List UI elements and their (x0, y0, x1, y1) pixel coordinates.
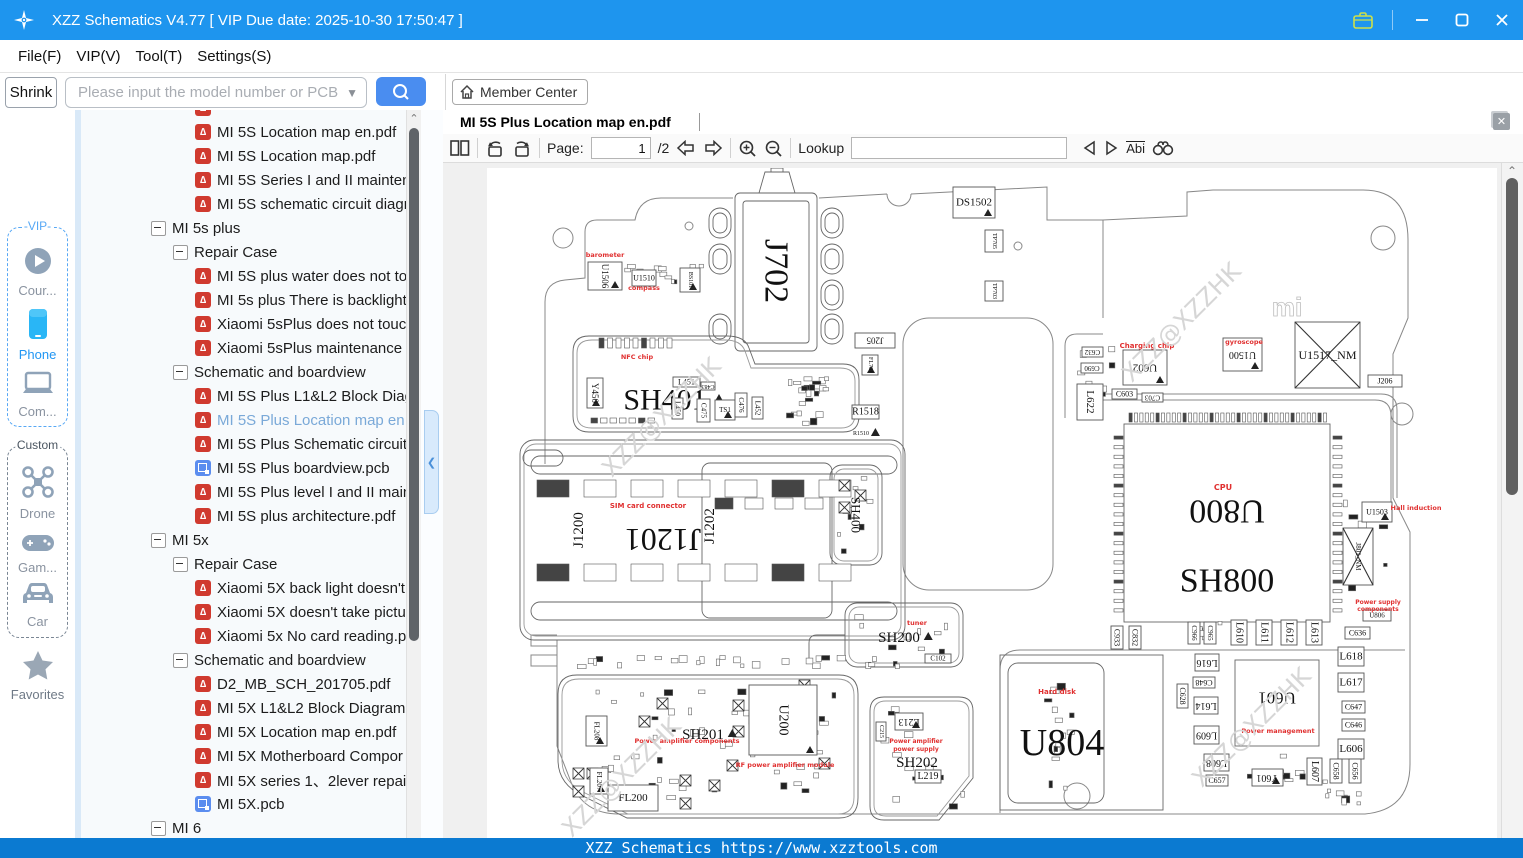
component-C603: C603 (1112, 389, 1137, 399)
red-annotation: compass (628, 284, 660, 292)
pdf-file-icon: ∆ (195, 172, 211, 188)
pdf-file-icon: ∆ (195, 412, 211, 428)
next-page-button[interactable] (703, 140, 723, 156)
svg-text:C648: C648 (1195, 678, 1212, 687)
file-tree: ∆∆MI 5S Location map en.pdf∆MI 5S Locati… (81, 110, 406, 838)
component-SH200: SH200 (878, 630, 933, 646)
component-TS1: TS1 (715, 400, 735, 420)
svg-text:L609: L609 (1196, 730, 1217, 741)
pdf-scrollbar[interactable]: ⌃ (1501, 163, 1523, 838)
svg-text:C656: C656 (1351, 762, 1360, 779)
tree-item[interactable]: ∆Xiaomi 5X back light doesn't (81, 576, 406, 600)
crossed-component (657, 698, 668, 709)
component-R1510: R1510 (853, 428, 880, 437)
phone-icon (26, 308, 50, 340)
close-document-icon[interactable]: ✕ (1493, 113, 1510, 130)
shrink-button[interactable]: Shrink (5, 77, 57, 108)
svg-text:U1506: U1506 (600, 264, 610, 289)
tree-item-label: MI 6 (172, 820, 201, 837)
status-text: XZZ Schematics https://www.xzztools.com (585, 839, 937, 857)
two-page-view-button[interactable] (450, 140, 470, 156)
model-search-input[interactable] (76, 83, 346, 102)
sidebar-item-computer[interactable]: Com... (8, 371, 67, 419)
rotate-right-button[interactable] (512, 139, 532, 158)
red-annotation: SIM card connector (610, 502, 687, 510)
red-annotation: Hall induction (1391, 504, 1442, 512)
svg-text:L616: L616 (1196, 657, 1217, 668)
sidebar-item-drone[interactable]: Drone (8, 465, 67, 521)
pdf-file-icon: ∆ (195, 148, 211, 164)
pdf-file-icon: ∆ (195, 484, 211, 500)
document-tab-bar: MI 5S Plus Location map en.pdf ✕ (443, 110, 1523, 135)
component-C933: C933 (1111, 626, 1123, 649)
svg-text:C628: C628 (1178, 687, 1187, 704)
component-L610: L610 (1231, 620, 1247, 645)
chevron-left-icon: ❮ (427, 456, 436, 469)
star-icon (22, 650, 54, 680)
pdf-page: mi DS1502J702TP705TP703U1506U1510BS101SH… (487, 168, 1497, 838)
tree-item[interactable]: ∆Xiaomi 5x No card reading.p (81, 624, 406, 648)
collapse-toggle-icon[interactable] (173, 653, 188, 668)
svg-text:C933: C933 (1113, 629, 1122, 646)
pdf-file-icon: ∆ (195, 724, 211, 740)
tree-item[interactable]: ∆MI 5S Plus Schematic circuit (81, 432, 406, 456)
tree-item-label: MI 5S plus water does not to (217, 268, 406, 285)
crossed-component (680, 775, 691, 786)
crossed-component (573, 768, 584, 779)
menu-file[interactable]: File(F) (18, 48, 61, 65)
svg-text:J1202: J1202 (702, 508, 718, 544)
tree-item[interactable]: ∆MI 5X Location map en.pdf (81, 720, 406, 744)
component-J206: J206 (1368, 375, 1402, 387)
component-FL208: FL208 (586, 716, 607, 746)
find-next-button[interactable] (1104, 140, 1119, 156)
laptop-icon (21, 371, 55, 397)
tree-item[interactable]: ∆MI 5S schematic circuit diagr (81, 192, 406, 216)
tree-item-label: MI 5S Series I and II mainten (217, 172, 406, 189)
tab-divider (699, 113, 700, 131)
red-annotation: Power amplifier (889, 738, 942, 745)
chevron-down-icon[interactable]: ▼ (346, 86, 358, 100)
titlebar-divider (1392, 10, 1393, 30)
red-annotation: Power supply (1355, 599, 1401, 606)
svg-text:SH800: SH800 (1180, 563, 1274, 600)
window-title: XZZ Schematics V4.77 [ VIP Due date: 202… (52, 12, 463, 29)
pdf-toolbar-divider (539, 138, 540, 158)
lookup-input[interactable] (851, 137, 1067, 159)
pdf-scrollbar-thumb[interactable] (1506, 178, 1518, 495)
svg-text:BS101: BS101 (687, 272, 693, 288)
tree-item-label: MI 5X series 1、2lever repair (217, 770, 406, 791)
component-C656: C656 (1349, 759, 1361, 783)
svg-text:L613: L613 (1309, 622, 1320, 643)
panel-collapse-handle[interactable]: ❮ (424, 410, 439, 514)
pdf-file-icon: ∆ (195, 110, 211, 116)
crossed-component (639, 716, 650, 727)
svg-text:J702: J702 (758, 239, 795, 303)
component-U1503: U1503 (1362, 502, 1392, 522)
svg-text:C965: C965 (1206, 625, 1214, 641)
tree-item-label: MI 5X Location map en.pdf (217, 724, 396, 741)
page-label: Page: (547, 140, 584, 156)
red-annotation: NFC chip (621, 353, 654, 361)
find-previous-button[interactable] (1082, 140, 1097, 156)
vip-group-label: -VIP- (22, 219, 53, 233)
tree-item-label: Repair Case (194, 244, 277, 261)
svg-text:TP705: TP705 (991, 233, 997, 249)
component-C647: C647 (1342, 701, 1365, 713)
component-L616: L616 (1195, 654, 1219, 671)
menu-tool[interactable]: Tool(T) (136, 48, 183, 65)
svg-text:C966: C966 (1190, 625, 1198, 641)
component-L618: L618 (1338, 647, 1364, 666)
custom-group-label: Custom (15, 438, 60, 452)
tree-node[interactable]: Schematic and boardview (81, 648, 406, 672)
component-Y450: Y450 (587, 378, 603, 408)
member-center-button[interactable]: Member Center (452, 79, 588, 105)
svg-text:R1518: R1518 (852, 407, 879, 418)
crossed-component (839, 502, 850, 513)
pdf-file-icon: ∆ (195, 628, 211, 644)
red-annotation: RF power amplifier module (736, 761, 835, 769)
component-L219: L219 (915, 770, 941, 783)
component-U1506: U1506 (588, 262, 622, 290)
svg-text:U800: U800 (1189, 493, 1265, 530)
red-annotation: Hard disk (1038, 688, 1076, 696)
component-DS1502: DS1502 (953, 187, 995, 218)
pdf-file-icon: ∆ (195, 292, 211, 308)
pdf-file-icon: ∆ (195, 316, 211, 332)
pdf-viewer: MI 5S Plus Location map en.pdf ✕ Page: /… (443, 110, 1523, 838)
tree-item-label: MI 5S Plus Schematic circuit (217, 436, 406, 453)
component-C475: C475 (697, 399, 710, 422)
svg-text:C475: C475 (700, 403, 708, 419)
svg-text:U200: U200 (776, 704, 791, 735)
tree-item-label: MI 5X Motherboard Compor (217, 748, 403, 765)
page-number-input[interactable] (591, 137, 651, 159)
mi-logo: mi (1272, 292, 1302, 322)
svg-text:C636: C636 (1349, 629, 1366, 638)
component-L607: L607 (1307, 758, 1322, 785)
component-L622: L622 (1077, 384, 1103, 420)
close-button[interactable] (1491, 9, 1513, 31)
collapse-toggle-icon[interactable] (151, 533, 166, 548)
svg-text:L618: L618 (1339, 651, 1363, 663)
tree-item[interactable]: ∆MI 5X Motherboard Compor (81, 744, 406, 768)
svg-text:J205: J205 (866, 336, 884, 346)
svg-text:C603: C603 (1116, 390, 1133, 399)
tree-item[interactable]: ∆MI 5S Plus level I and II main (81, 480, 406, 504)
component-R1518: R1518 (852, 405, 879, 419)
component-TP705: TP705 (985, 230, 1003, 252)
tree-item[interactable]: ∆Xiaomi 5X doesn't take pictu (81, 600, 406, 624)
rotate-left-button[interactable] (485, 139, 505, 158)
pdf-file-icon: ∆ (195, 388, 211, 404)
component-C648: C648 (1193, 677, 1215, 688)
status-bar: XZZ Schematics https://www.xzztools.com (0, 838, 1523, 858)
component-C102: C102 (925, 654, 951, 663)
page-total: /2 (658, 140, 670, 156)
vip-group: -VIP- Cour... Phone Com... (7, 227, 68, 427)
custom-group: Custom Drone Gam... Car (7, 446, 68, 638)
red-annotation: gyroscope (1225, 338, 1263, 346)
sidebar-item-game[interactable]: Gam... (8, 533, 67, 575)
toolbar-divider (445, 74, 446, 110)
tree-item-label: MI 5X.pcb (217, 796, 285, 813)
component-TP703: TP703 (985, 281, 1003, 301)
collapse-toggle-icon[interactable] (173, 365, 188, 380)
pdf-file-icon: ∆ (195, 508, 211, 524)
svg-text:C690: C690 (1084, 364, 1100, 372)
tree-item[interactable]: ∆MI 5s plus There is backlight (81, 288, 406, 312)
pdf-content-area: mi DS1502J702TP705TP703U1506U1510BS101SH… (443, 163, 1523, 838)
component-FL701: FL701 (862, 355, 878, 375)
component-U200: U200 (749, 685, 817, 755)
tree-item[interactable]: ∆MI 5S Location map en.pdf (81, 120, 406, 144)
pdf-toolbar: Page: /2 Lookup Abi (443, 134, 1523, 163)
pdf-file-icon: ∆ (195, 196, 211, 212)
tree-item-label: MI 5x (172, 532, 209, 549)
pdf-scroll-up-arrow[interactable]: ⌃ (1502, 164, 1522, 178)
svg-text:U1510: U1510 (633, 274, 655, 283)
gamepad-icon (21, 533, 55, 553)
tree-item-label: MI 5S Location map.pdf (217, 148, 375, 165)
component-L613: L613 (1306, 620, 1322, 645)
component-L617: L617 (1338, 673, 1364, 692)
pdf-file-icon: ∆ (195, 580, 211, 596)
pdf-toolbar-divider (790, 138, 791, 158)
tree-item-label: MI 5S Plus L1&L2 Block Diag (217, 388, 406, 405)
lookup-label: Lookup (798, 140, 844, 156)
svg-text:U804: U804 (1020, 722, 1104, 764)
tree-item-label: Xiaomi 5X back light doesn't (217, 580, 405, 597)
main-toolbar: Shrink ▼ Member Center (0, 74, 1523, 111)
pdf-file-icon: ∆ (195, 124, 211, 140)
app-window: XZZ Schematics V4.77 [ VIP Due date: 202… (0, 0, 1523, 858)
component-C476: C476 (735, 393, 747, 417)
svg-text:Y450: Y450 (590, 383, 600, 403)
tree-item-label: Xiaomi 5sPlus maintenance v (217, 340, 406, 357)
crossed-component (680, 798, 691, 809)
tree-item[interactable]: ∆MI 5X L1&L2 Block Diagram (81, 696, 406, 720)
tree-item-label: Schematic and boardview (194, 652, 366, 669)
play-icon (23, 246, 53, 276)
component-J205: J205 (855, 333, 895, 348)
sidebar-item-car[interactable]: Car (8, 581, 67, 629)
tree-item[interactable]: ∆D2_MB_SCH_201705.pdf (81, 672, 406, 696)
svg-text:C658: C658 (1332, 762, 1341, 779)
vip-briefcase-icon[interactable] (1352, 9, 1374, 31)
tree-scrollbar-thumb[interactable] (409, 128, 419, 641)
svg-text:DS1502: DS1502 (956, 197, 992, 209)
component-C832: C832 (1129, 626, 1141, 649)
svg-text:L452: L452 (754, 401, 762, 416)
component-C632: C632 (1082, 347, 1103, 357)
menu-bar: File(F) VIP(V) Tool(T) Settings(S) (0, 40, 1523, 73)
red-annotation: components (1357, 606, 1399, 613)
tree-node[interactable]: Schematic and boardview (81, 360, 406, 384)
pdf-toolbar-divider (730, 138, 731, 158)
pdf-file-icon: ∆ (195, 604, 211, 620)
schematic-drawing: mi DS1502J702TP705TP703U1506U1510BS101SH… (487, 168, 1497, 838)
svg-text:C476: C476 (737, 397, 745, 413)
component-C703: C703 (1142, 393, 1163, 402)
svg-text:C647: C647 (1345, 703, 1362, 712)
tree-item[interactable]: ∆MI 5S plus water does not to (81, 264, 406, 288)
svg-text:J1201: J1201 (625, 522, 701, 558)
red-annotation: barometer (586, 251, 625, 259)
component-C636: C636 (1345, 627, 1370, 639)
tree-item[interactable]: ∆MI 5S Location map.pdf (81, 144, 406, 168)
component-C966: C966 (1188, 622, 1200, 644)
sidebar-item-phone[interactable]: Phone (8, 308, 67, 362)
component-L452: L452 (752, 397, 763, 419)
pdf-file-icon: ∆ (195, 700, 211, 716)
tree-item-label: Xiaomi 5sPlus does not touc (217, 316, 406, 333)
component-L611: L611 (1256, 620, 1272, 645)
svg-text:L622: L622 (1084, 390, 1096, 413)
pdf-file-icon: ∆ (195, 340, 211, 356)
pdf-file-icon: ∆ (195, 268, 211, 284)
component-C690: C690 (1081, 363, 1103, 373)
binoculars-search-icon[interactable] (1152, 140, 1174, 156)
tree-item-label: MI 5s plus There is backlight (217, 292, 406, 309)
svg-text:L607: L607 (1309, 761, 1320, 782)
svg-text:L614: L614 (1195, 700, 1216, 711)
tree-node[interactable]: MI 5x (81, 528, 406, 552)
home-icon (459, 84, 475, 100)
zoom-in-button[interactable] (738, 139, 757, 158)
svg-text:C832: C832 (1131, 629, 1140, 646)
zoom-out-button[interactable] (764, 139, 783, 158)
tree-node[interactable]: Repair Case (81, 240, 406, 264)
component-C646: C646 (1342, 719, 1365, 731)
tree-scrollbar[interactable]: ⌃ (406, 110, 421, 838)
svg-text:J801_NM: J801_NM (1354, 542, 1362, 571)
sidebar-item-favorites[interactable]: Favorites (7, 650, 68, 702)
component-J801_NM: J801_NM (1343, 528, 1373, 585)
component-SH800: SH800 (1180, 563, 1274, 600)
component-J1202: J1202 (702, 508, 718, 544)
collapse-toggle-icon[interactable] (151, 221, 166, 236)
tree-node[interactable]: Repair Case (81, 552, 406, 576)
tree-item-label: MI 5S Location map en.pdf (217, 124, 396, 141)
svg-text:TS1: TS1 (719, 406, 731, 414)
car-icon (21, 581, 55, 607)
svg-text:L606: L606 (1339, 743, 1363, 755)
tree-node[interactable]: MI 6 (81, 816, 406, 838)
model-search-combo[interactable]: ▼ (65, 77, 367, 108)
tree-scroll-up-arrow[interactable]: ⌃ (408, 112, 420, 125)
minimize-button[interactable] (1411, 9, 1433, 31)
document-tab[interactable]: MI 5S Plus Location map en.pdf (460, 110, 671, 134)
maximize-button[interactable] (1451, 9, 1473, 31)
tree-item-label: Xiaomi 5x No card reading.p (217, 628, 406, 645)
component-L612: L612 (1281, 620, 1297, 645)
tree-item[interactable]: ∆Xiaomi 5sPlus maintenance v (81, 336, 406, 360)
text-select-tool[interactable]: Abi (1126, 141, 1145, 156)
red-annotation: power supply (893, 746, 939, 753)
menu-settings[interactable]: Settings(S) (197, 48, 271, 65)
component-SH400: SH400 (849, 497, 864, 533)
component-SH202: SH202 (896, 755, 938, 771)
crossed-component (733, 700, 744, 711)
svg-text:J206: J206 (1377, 377, 1392, 386)
red-annotation: tuner (907, 619, 928, 627)
collapse-toggle-icon[interactable] (151, 821, 166, 836)
tree-item[interactable]: ∆ (81, 110, 406, 120)
pdf-file-icon: ∆ (195, 676, 211, 692)
component-U804: U804 (1020, 722, 1104, 764)
component-U800: U800 (1189, 493, 1265, 530)
svg-text:R1510: R1510 (853, 431, 869, 437)
drone-icon (21, 465, 55, 499)
svg-text:C703: C703 (1144, 394, 1160, 402)
svg-text:L610: L610 (1234, 622, 1245, 643)
tree-item[interactable]: ∆MI 5S plus architecture.pdf (81, 504, 406, 528)
component-C215: C215 (876, 722, 886, 741)
pdf-file-icon: ∆ (195, 748, 211, 764)
search-button[interactable] (376, 77, 426, 106)
tree-item[interactable]: MI 5S Plus boardview.pcb (81, 456, 406, 480)
pdf-file-icon: ∆ (195, 436, 211, 452)
component-J1201: J1201 (625, 522, 701, 558)
svg-text:Y601: Y601 (1256, 772, 1278, 783)
component-C628: C628 (1177, 684, 1188, 708)
svg-text:U1517_NM: U1517_NM (1298, 348, 1356, 362)
svg-text:SH200: SH200 (878, 630, 920, 646)
tree-item[interactable]: ∆Xiaomi 5sPlus does not touc (81, 312, 406, 336)
crossed-component (839, 480, 850, 491)
tree-item[interactable]: ∆MI 5S Plus Location map en. (81, 408, 406, 432)
tree-node[interactable]: MI 5s plus (81, 216, 406, 240)
title-bar: XZZ Schematics V4.77 [ VIP Due date: 202… (0, 0, 1523, 40)
svg-text:FL208: FL208 (593, 722, 601, 741)
tree-item-label: D2_MB_SCH_201705.pdf (217, 676, 390, 693)
svg-text:L612: L612 (1284, 622, 1295, 643)
svg-text:C102: C102 (930, 655, 946, 663)
tree-item-label: MI 5S plus architecture.pdf (217, 508, 395, 525)
menu-vip[interactable]: VIP(V) (76, 48, 120, 65)
tree-item[interactable]: ∆MI 5S Plus L1&L2 Block Diag (81, 384, 406, 408)
tree-item[interactable]: MI 5X.pcb (81, 792, 406, 816)
tree-item-label: Xiaomi 5X doesn't take pictu (217, 604, 406, 621)
tree-item-label: MI 5X L1&L2 Block Diagram (217, 700, 405, 717)
component-J1200: J1200 (571, 512, 587, 548)
category-sidebar: -VIP- Cour... Phone Com... Custom Drone (0, 110, 75, 838)
app-logo-icon (12, 8, 36, 32)
component-L606: L606 (1338, 739, 1364, 759)
svg-text:J1200: J1200 (571, 512, 587, 548)
collapse-toggle-icon[interactable] (173, 557, 188, 572)
pcb-file-icon (195, 796, 211, 812)
svg-text:SH400: SH400 (849, 497, 864, 533)
component-L614: L614 (1194, 697, 1218, 714)
svg-text:C215: C215 (878, 725, 884, 738)
tree-item-label: MI 5s plus (172, 220, 240, 237)
collapse-toggle-icon[interactable] (173, 245, 188, 260)
previous-page-button[interactable] (676, 140, 696, 156)
red-annotation: CPU (1214, 483, 1232, 492)
pdf-file-icon: ∆ (195, 772, 211, 788)
tree-item[interactable]: ∆MI 5S Series I and II mainten (81, 168, 406, 192)
tree-item[interactable]: ∆MI 5X series 1、2lever repair (81, 768, 406, 792)
tree-item-label: MI 5S Plus level I and II main (217, 484, 406, 501)
sidebar-item-course[interactable]: Cour... (8, 246, 67, 298)
pdf-toolbar-divider (477, 138, 478, 158)
component-BS101: BS101 (680, 268, 700, 292)
svg-text:L611: L611 (1259, 622, 1270, 643)
